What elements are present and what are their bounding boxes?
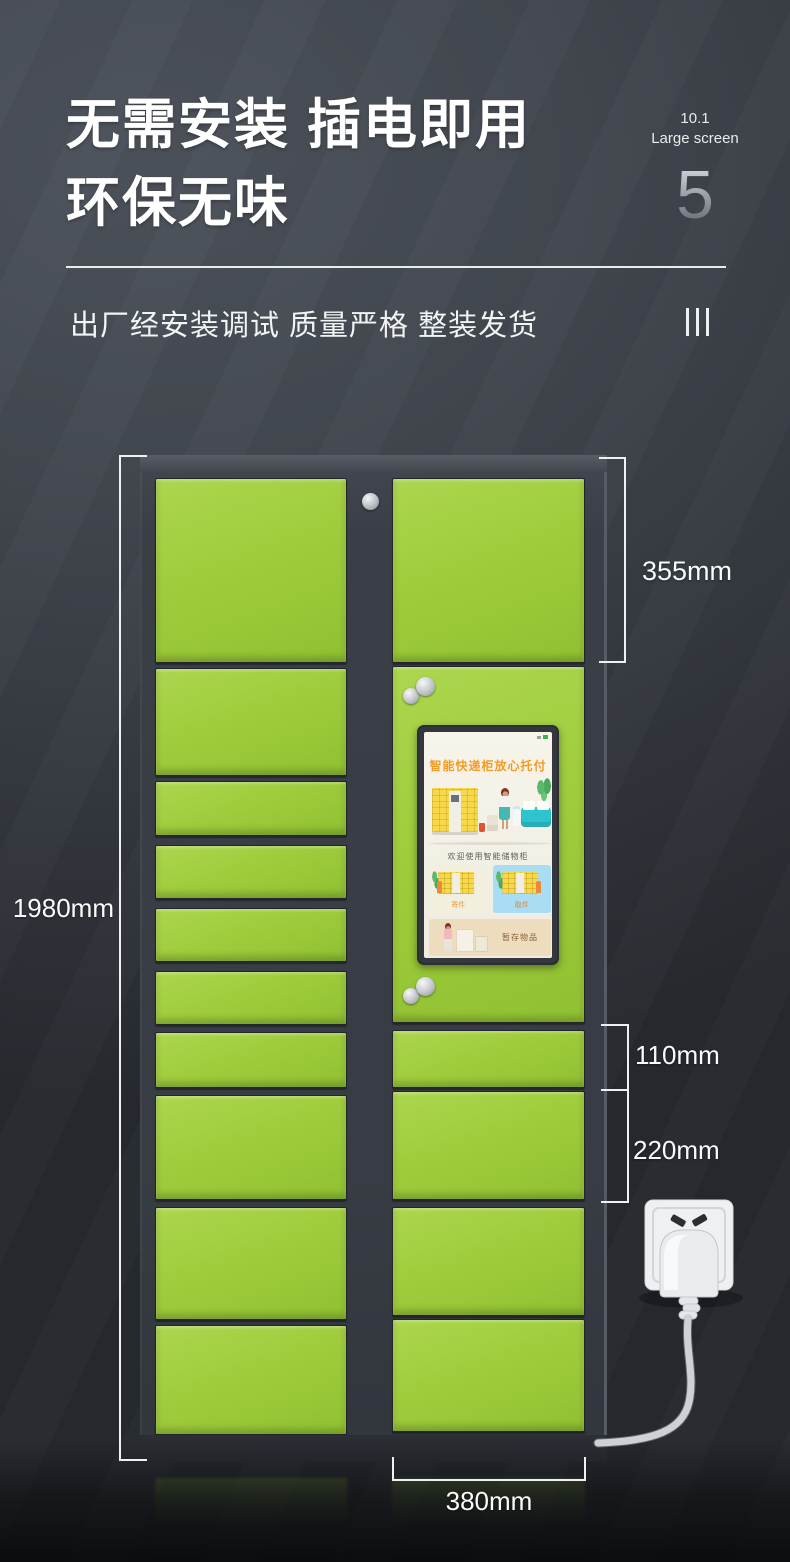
kiosk-screen-content: 智能快递柜放心托付 [424, 732, 552, 958]
send-card-label: 寄件 [429, 900, 488, 910]
dim-355-tick-top [599, 457, 626, 459]
dim-110-line [627, 1024, 629, 1091]
illustration-locker [432, 788, 478, 832]
screen-status-icons [537, 735, 548, 739]
locker-door [392, 1319, 585, 1432]
power-socket-icon [560, 1180, 790, 1470]
illustration-plant-pot [479, 823, 485, 832]
screen-size-value: 10.1 [640, 110, 750, 127]
dim-110-tick-top [601, 1024, 629, 1026]
locker-door [155, 668, 347, 776]
triple-bar-icon [686, 308, 709, 336]
illustration-dispenser [513, 806, 520, 826]
dim-355-tick-bottom [599, 661, 626, 663]
screen-welcome-text: 欢迎使用智能储物柜 [424, 851, 552, 862]
page-title: 无需安装 插电即用 环保无味 [66, 86, 531, 242]
dim-380-label: 380mm [392, 1486, 586, 1517]
pickup-card: 取件 [493, 865, 552, 913]
illustration-parcel [487, 815, 498, 831]
locker-door [392, 1030, 585, 1088]
page-number: 5 [640, 156, 750, 234]
illustration-plant [536, 777, 552, 803]
illustration-sofa [521, 807, 551, 827]
dim-110-label: 110mm [635, 1040, 720, 1071]
screen-action-cards: 寄件 取件 [429, 865, 551, 913]
dim-355-label: 355mm [642, 556, 732, 587]
locker-door [155, 971, 347, 1025]
locker-cabinet: 智能快递柜放心托付 [140, 455, 607, 1462]
locker-door [155, 1325, 347, 1435]
door-column-left [155, 455, 347, 1462]
dim-height-label: 1980mm [8, 893, 114, 924]
lock-icon [362, 493, 379, 510]
dim-height-line [119, 455, 121, 1461]
poster: 无需安装 插电即用 环保无味 10.1 Large screen 5 出厂经安装… [0, 0, 790, 1562]
kiosk-screen: 智能快递柜放心托付 [417, 725, 559, 965]
locker-door [155, 845, 347, 899]
subtitle: 出厂经安装调试 质量严格 整装发货 [70, 302, 538, 344]
knob-icon [403, 677, 441, 709]
locker-door [392, 478, 585, 663]
dim-380-line [392, 1479, 586, 1481]
locker-door [155, 1032, 347, 1088]
locker-door [155, 1095, 347, 1200]
locker-door [155, 908, 347, 962]
send-card: 寄件 [429, 865, 488, 913]
storage-card-label: 暂存物品 [502, 932, 538, 943]
dim-110-tick-mid [601, 1089, 629, 1091]
divider-line [66, 266, 726, 268]
screen-size-label: Large screen [640, 130, 750, 147]
dim-height-tick-top [119, 455, 147, 457]
screen-illustration [429, 779, 551, 845]
locker-door [392, 1207, 585, 1316]
dim-380-tick-left [392, 1457, 394, 1481]
pickup-card-label: 取件 [493, 900, 552, 910]
locker-door [155, 1207, 347, 1320]
cabinet-base [140, 1435, 607, 1462]
dim-220-label: 220mm [633, 1135, 720, 1166]
dim-height-tick-bottom [119, 1459, 147, 1461]
locker-door [392, 1091, 585, 1200]
knob-icon [403, 977, 441, 1009]
screen-headline: 智能快递柜放心托付 [424, 757, 552, 774]
storage-card: 暂存物品 [429, 919, 551, 956]
dim-355-line [624, 457, 626, 663]
locker-door [155, 781, 347, 836]
locker-door [155, 478, 347, 663]
title-line-1: 无需安装 插电即用 [66, 86, 531, 164]
title-line-2: 环保无味 [66, 164, 531, 242]
